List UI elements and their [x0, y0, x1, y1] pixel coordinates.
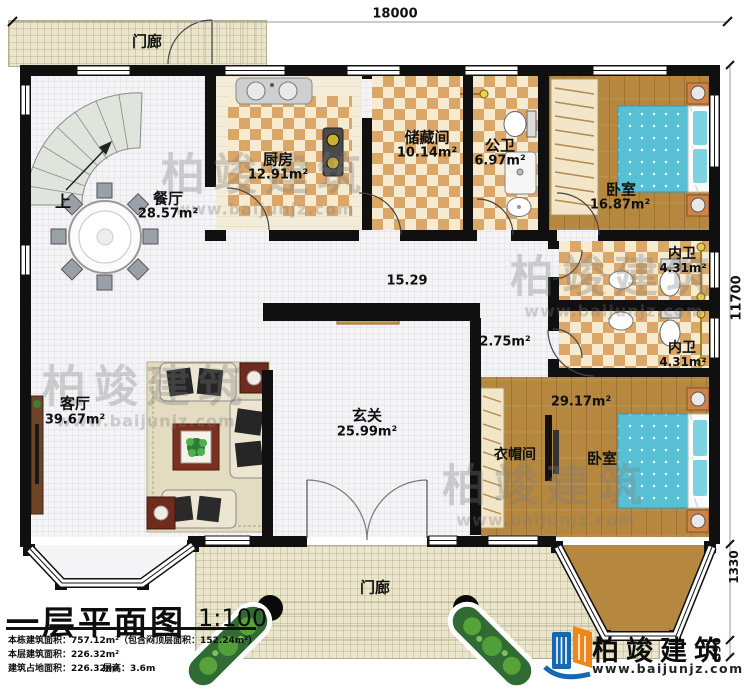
porch-top-label: 门廊: [132, 35, 162, 50]
stairs-up-label: 上: [55, 194, 71, 210]
hall-area: 15.29: [386, 275, 427, 288]
shrine-label: 神龛: [356, 308, 380, 320]
title-rule: [6, 627, 256, 630]
foyer-area: 25.99m²: [337, 426, 397, 439]
porch-bottom-label: 门廊: [360, 581, 390, 596]
stat-total-area: 本栋建筑面积：757.12m²（包含闷顶层面积：152.24m²）: [8, 633, 257, 646]
storage-label: 储藏间: [404, 131, 449, 146]
kitchen-label: 厨房: [263, 153, 293, 168]
dining-area: 28.57m²: [138, 208, 198, 221]
living-label: 客厅: [60, 397, 90, 412]
dim-right-main: 11700: [731, 275, 744, 320]
inner-bath-2-area: 4.31m²: [659, 356, 706, 368]
stat-floor-area: 本层建筑面积：226.32m²: [8, 647, 119, 660]
public-bath-label: 公卫: [485, 139, 515, 154]
stat-floor-height: 层高：3.6m: [103, 661, 155, 674]
dining-label: 餐厅: [153, 192, 183, 207]
passage-area: 2.75m²: [479, 336, 530, 349]
inner-bath-1-area: 4.31m²: [659, 262, 706, 274]
kitchen-area: 12.91m²: [248, 169, 308, 182]
living-area: 39.67m²: [45, 414, 105, 427]
company-website: www.baijunjz.com: [592, 661, 744, 676]
bedroom-top-label: 卧室: [606, 183, 636, 198]
living-bay-floor: [30, 545, 193, 583]
inner-bath-1-label: 内卫: [668, 247, 696, 261]
porch-bottom-floor: [195, 545, 660, 659]
dim-right-bay: 1330: [728, 550, 740, 583]
bedroom-bottom-area: 29.17m²: [551, 396, 611, 409]
public-bath-area: 6.97m²: [474, 155, 525, 168]
foyer-label: 玄关: [352, 409, 382, 424]
floor-plan-canvas: 柏竣建筑 www.baijunjz.com 柏竣建筑 www.baijunjz.…: [0, 0, 750, 691]
storage-area: 10.14m²: [397, 147, 457, 160]
bedroom-top-area: 16.87m²: [590, 199, 650, 212]
cloakroom-label: 衣帽间: [494, 448, 536, 462]
bedroom-bottom-label: 卧室: [587, 452, 617, 467]
dim-top: 18000: [372, 8, 417, 21]
inner-bath-2-label: 内卫: [668, 341, 696, 355]
